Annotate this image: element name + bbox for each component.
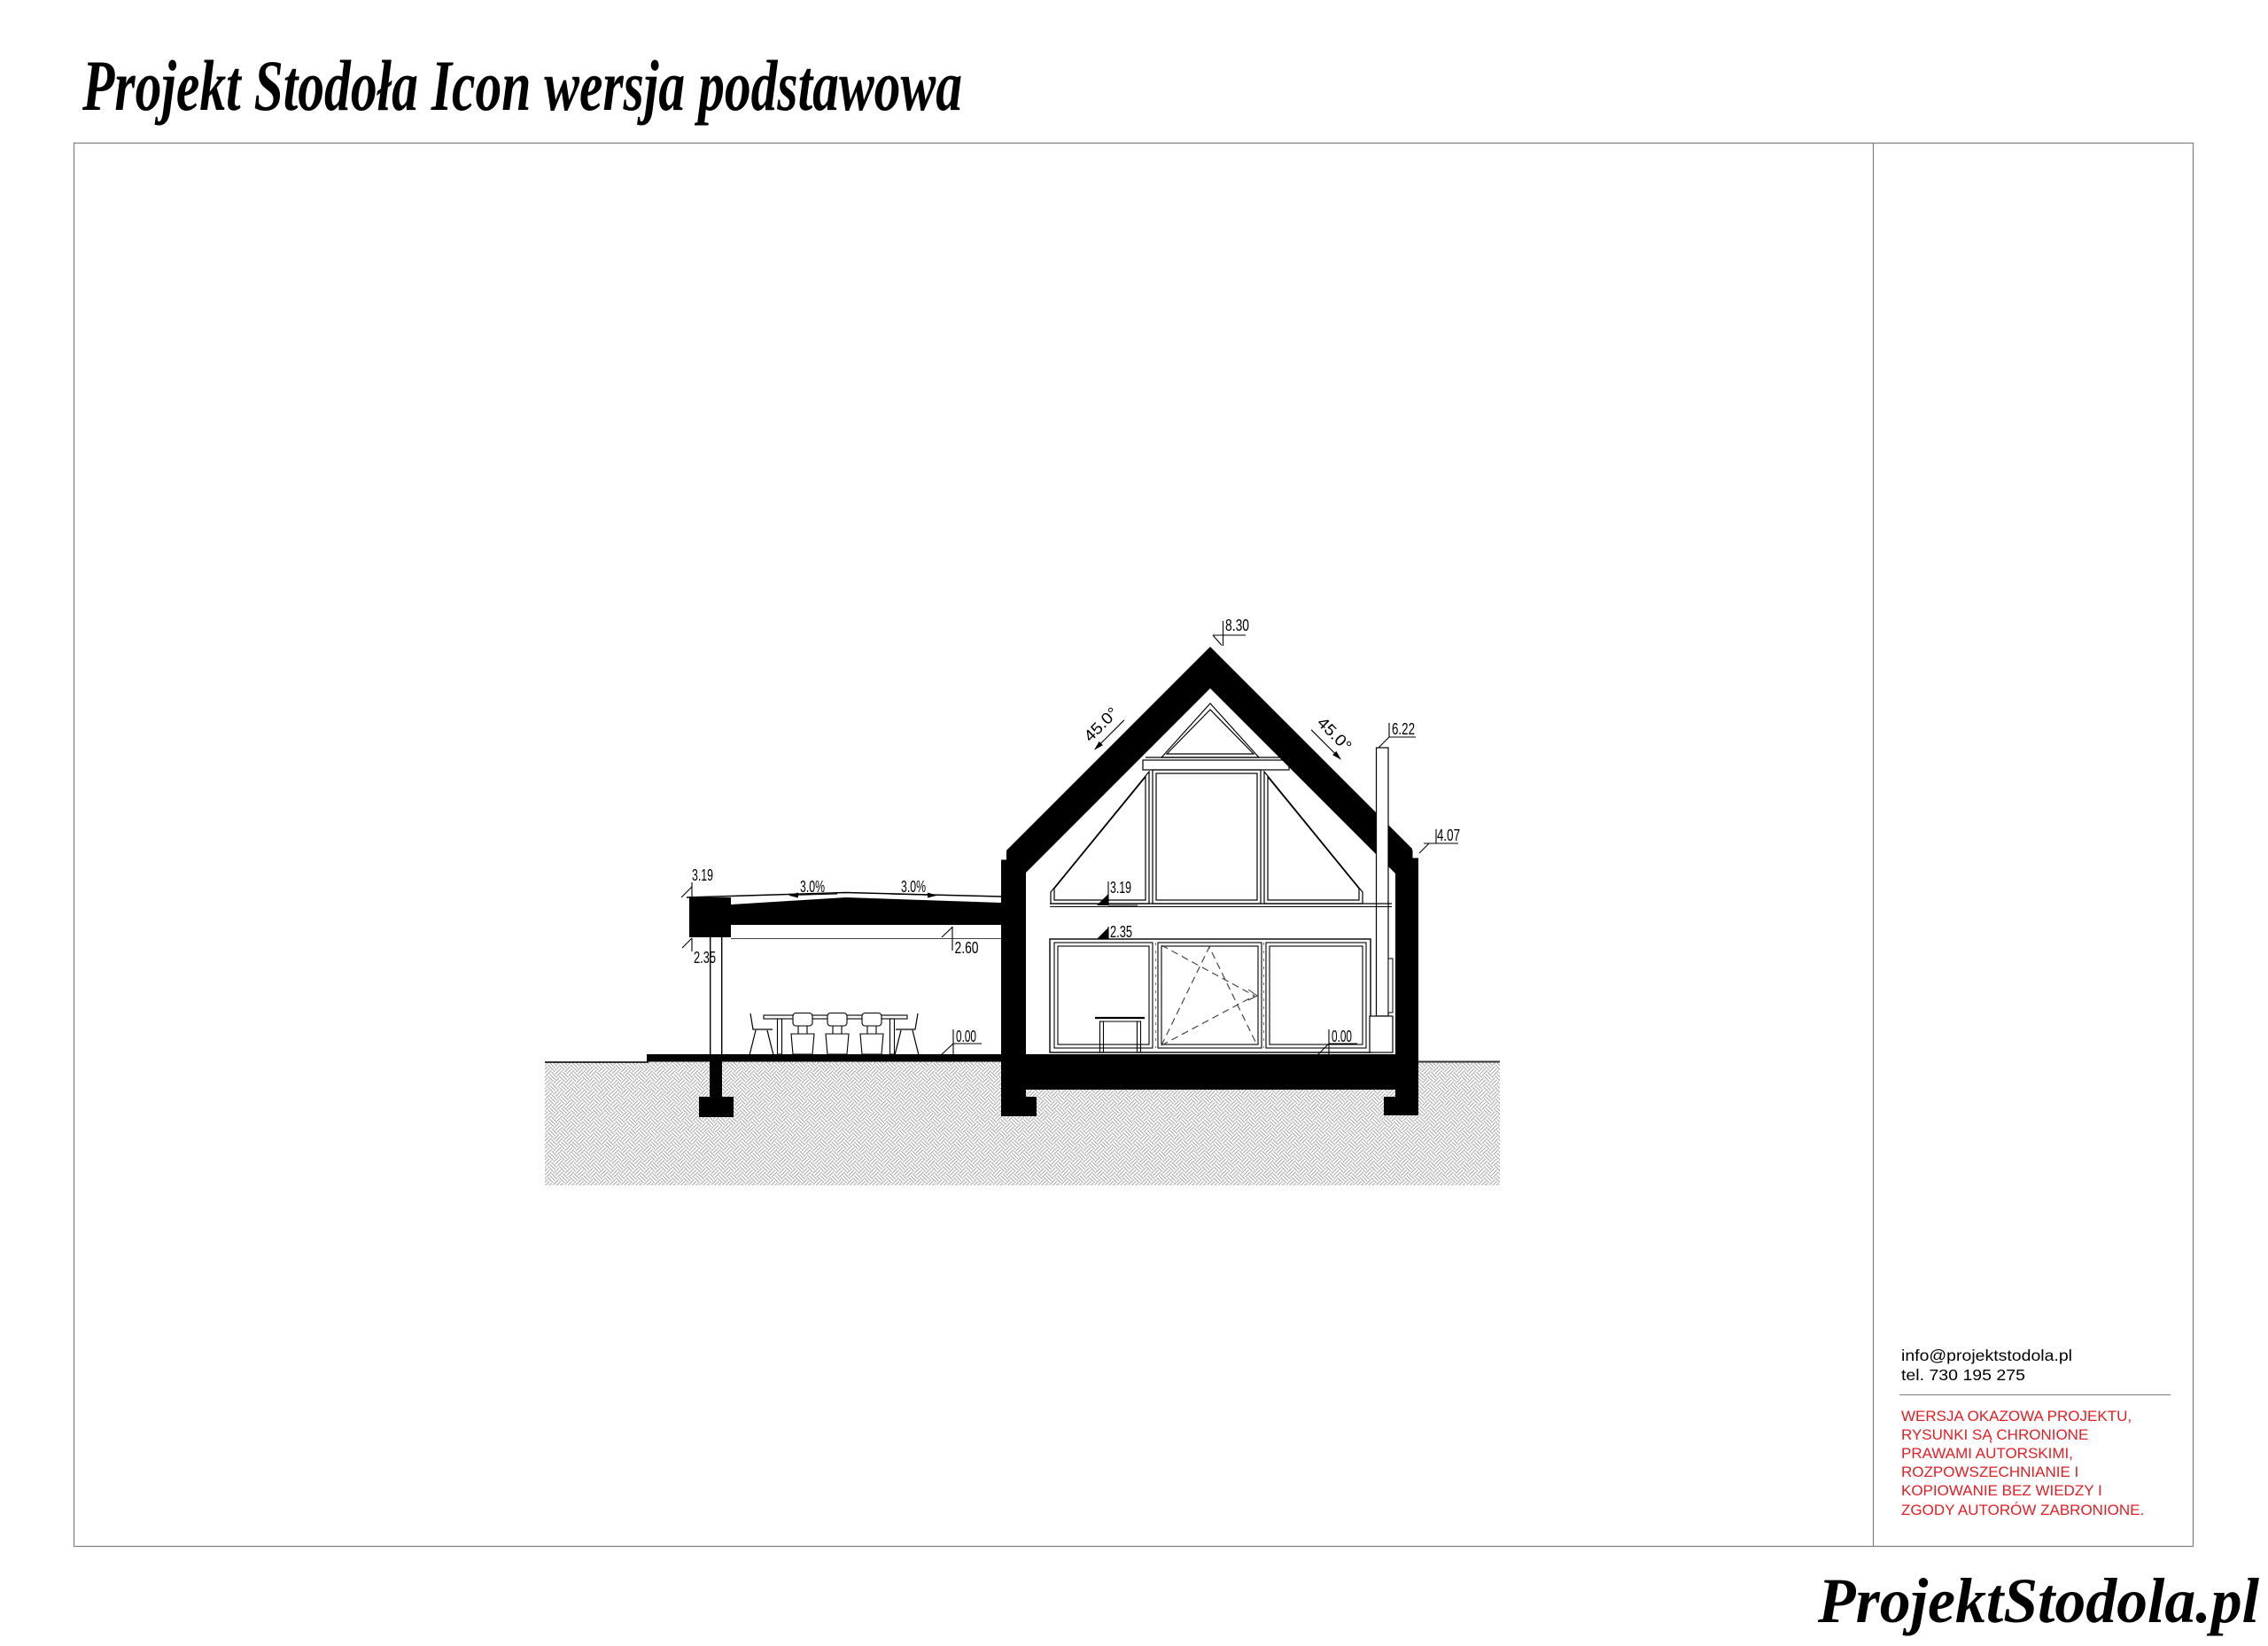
svg-text:3.0%: 3.0% [800, 878, 825, 896]
svg-text:Projekt Stodoła Icon wersja po: Projekt Stodoła Icon wersja podstawowa [82, 45, 962, 126]
svg-text:6.22: 6.22 [1392, 720, 1415, 738]
svg-text:2.35: 2.35 [1110, 923, 1132, 941]
svg-text:0.00: 0.00 [1332, 1028, 1352, 1045]
svg-text:8.30: 8.30 [1225, 617, 1249, 634]
svg-text:PRAWAMI AUTORSKIMI,: PRAWAMI AUTORSKIMI, [1901, 1445, 2073, 1462]
svg-text:3.19: 3.19 [1110, 879, 1131, 897]
svg-text:3.19: 3.19 [692, 866, 713, 884]
svg-text:WERSJA OKAZOWA PROJEKTU,: WERSJA OKAZOWA PROJEKTU, [1901, 1408, 2132, 1425]
svg-text:4.07: 4.07 [1437, 827, 1460, 844]
svg-text:2.60: 2.60 [955, 939, 979, 957]
svg-text:3.0%: 3.0% [901, 878, 926, 896]
svg-text:ROZPOWSZECHNIANIE I: ROZPOWSZECHNIANIE I [1901, 1464, 2078, 1480]
svg-text:tel. 730 195 275: tel. 730 195 275 [1901, 1366, 2025, 1384]
svg-text:0.00: 0.00 [956, 1028, 976, 1045]
svg-text:KOPIOWANIE BEZ WIEDZY I: KOPIOWANIE BEZ WIEDZY I [1901, 1482, 2102, 1499]
svg-text:RYSUNKI SĄ CHRONIONE: RYSUNKI SĄ CHRONIONE [1901, 1426, 2088, 1443]
svg-text:2.35: 2.35 [694, 949, 716, 967]
svg-text:ProjektStodola.pl: ProjektStodola.pl [1817, 1565, 2259, 1636]
svg-text:ZGODY AUTORÓW ZABRONIONE.: ZGODY AUTORÓW ZABRONIONE. [1901, 1502, 2144, 1518]
svg-text:info@projektstodola.pl: info@projektstodola.pl [1901, 1347, 2072, 1364]
